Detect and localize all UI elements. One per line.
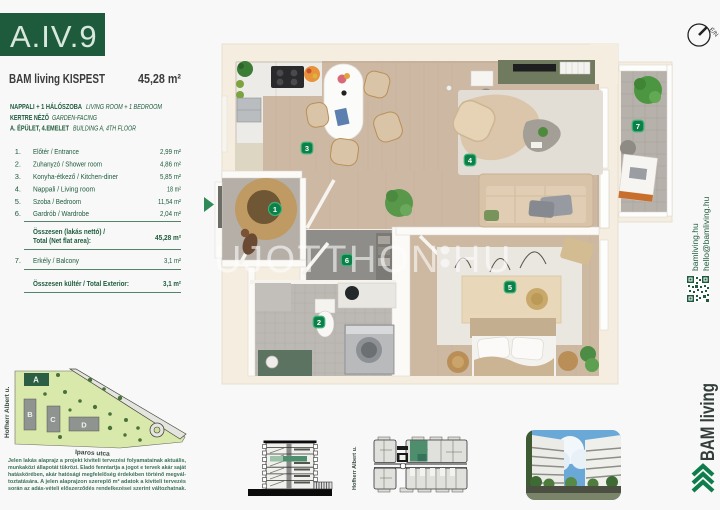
svg-text:Konyha-étkező / Kitchen-diner: Konyha-étkező / Kitchen-diner [33,172,118,181]
svg-text:3,1 m²: 3,1 m² [163,279,181,288]
svg-text:Szoba / Bedroom: Szoba / Bedroom [33,197,81,206]
svg-text:GARDEN-FACING: GARDEN-FACING [52,113,97,122]
svg-text:2: 2 [317,318,321,327]
svg-text:Jelen lakás alaprajz a projekt: Jelen lakás alaprajz a projekt kiviteli … [8,458,186,464]
svg-text:Erkély / Balcony: Erkély / Balcony [33,256,79,265]
svg-text:Összesen kültér / Total Exteri: Összesen kültér / Total Exterior: [33,279,129,288]
svg-text:LIVING ROOM + 1 BEDROOM: LIVING ROOM + 1 BEDROOM [86,102,163,111]
svg-text:C: C [50,415,56,424]
svg-text:UJOTTHON: UJOTTHON [214,239,441,281]
svg-text:Total (Net flat area):: Total (Net flat area): [33,236,91,245]
svg-text:BUILDING A, 4TH FLOOR: BUILDING A, 4TH FLOOR [73,124,136,133]
svg-text:Zuhanyzó / Shower room: Zuhanyzó / Shower room [33,160,102,169]
svg-text:BAM living: BAM living [698,383,719,461]
svg-text:munkaközi állapotát tükrözi. E: munkaközi állapotát tükrözi. Eladó fennt… [8,465,186,471]
svg-text:Összesen (lakás nettó) /: Összesen (lakás nettó) / [33,227,106,236]
svg-text:Hofherr Albert u.: Hofherr Albert u. [4,386,11,438]
svg-text:bamliving.hu: bamliving.hu [690,223,700,271]
svg-text:HU: HU [453,239,513,281]
svg-text:A: A [33,376,39,385]
svg-text:3,1 m²: 3,1 m² [164,256,181,265]
svg-text:hello@bamliving.hu: hello@bamliving.hu [701,196,711,271]
svg-text:Gardrób / Wardrobe: Gardrób / Wardrobe [33,209,89,218]
svg-text:1.: 1. [15,147,21,156]
svg-text:B: B [27,410,33,419]
svg-text:18 m²: 18 m² [167,185,181,194]
svg-text:7.: 7. [15,256,21,265]
svg-text:2,04 m²: 2,04 m² [160,209,181,218]
svg-text:BAM living KISPEST: BAM living KISPEST [9,71,105,86]
svg-text:11,54 m²: 11,54 m² [158,197,181,206]
svg-text:4,86 m²: 4,86 m² [160,160,181,169]
svg-text:hatáskörében, akár hatósági me: hatáskörében, akár hatósági megfelelőség… [8,472,186,478]
svg-text:A. ÉPÜLET, 4.EMELET: A. ÉPÜLET, 4.EMELET [10,124,69,133]
svg-text:Nappali / Living room: Nappali / Living room [33,185,95,194]
svg-text:1: 1 [273,205,277,214]
svg-text:5.: 5. [15,197,21,206]
svg-text:Előtér / Entrance: Előtér / Entrance [33,147,79,156]
svg-text:A.IV.9: A.IV.9 [10,19,98,54]
svg-text:során az adás-vételi előszerző: során az adás-vételi előszerződés rendel… [8,486,186,492]
svg-text:5: 5 [508,283,512,292]
svg-text:4.: 4. [15,185,21,194]
svg-text:5,85 m²: 5,85 m² [160,172,181,181]
svg-text:2.: 2. [15,160,21,169]
svg-text:D: D [81,421,87,430]
svg-text:45,28 m²: 45,28 m² [155,233,181,242]
svg-text:3: 3 [305,144,309,153]
svg-text:toztatására. A jelen alaprajzo: toztatására. A jelen alaprajzon szereplő… [8,478,186,485]
svg-text:NAPPALI + 1 HÁLÓSZOBA: NAPPALI + 1 HÁLÓSZOBA [10,102,82,111]
svg-text:Hofherr Albert u.: Hofherr Albert u. [352,446,358,490]
svg-text:6.: 6. [15,209,21,218]
svg-text:7: 7 [636,122,640,131]
svg-text:3.: 3. [15,172,21,181]
svg-text:KERTRE NÉZŐ: KERTRE NÉZŐ [10,113,49,122]
svg-text:2,99 m²: 2,99 m² [160,147,181,156]
svg-text:45,28 m²: 45,28 m² [138,71,182,86]
